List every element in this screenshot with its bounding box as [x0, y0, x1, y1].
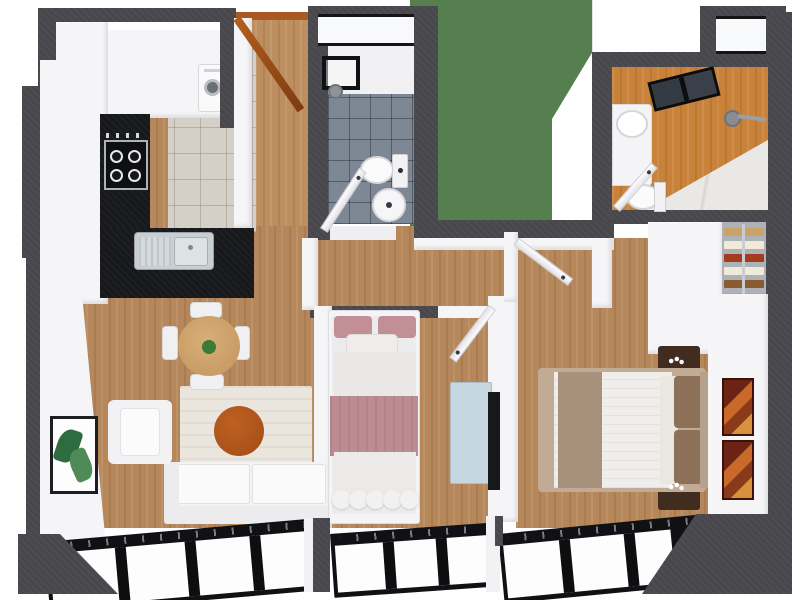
- burner-icon: [128, 150, 141, 163]
- toilet-flush-button: [398, 168, 403, 173]
- toilet-tank: [654, 182, 666, 212]
- door-handle-icon: [560, 275, 566, 281]
- wall-right-outer: [766, 12, 792, 546]
- kitchen-sink: [134, 232, 214, 270]
- blue-dresser: [450, 382, 492, 484]
- dining-chair: [162, 326, 178, 360]
- wall-bath2-left: [592, 52, 612, 222]
- burner-icon: [110, 150, 123, 163]
- door-handle-icon: [646, 169, 652, 175]
- headboard: [700, 372, 708, 488]
- wall-bath1-shaft-top: [308, 6, 438, 14]
- flower-vase-icon: [668, 482, 684, 492]
- wall-master-west: [592, 238, 612, 308]
- door-handle-icon: [455, 350, 461, 356]
- drainboard: [139, 237, 171, 266]
- wall-tv: [488, 392, 500, 490]
- burner-icon: [110, 169, 123, 182]
- wall-living-hall-stub: [302, 238, 318, 310]
- x-marked-shaft-window: [716, 16, 768, 54]
- pink-blanket: [330, 396, 418, 456]
- pedestal-sink: [372, 188, 406, 222]
- shower-head-icon: [724, 110, 741, 127]
- shower-head-icon: [328, 84, 343, 99]
- botanical-wall-art: [50, 416, 98, 494]
- bed-skirt-scallop: [400, 490, 419, 509]
- window-glass: [335, 535, 490, 592]
- sink-basin: [174, 237, 208, 266]
- wall-left-notch: [22, 86, 42, 258]
- bed-sheet: [334, 352, 416, 400]
- wall-face-entry: [234, 18, 252, 228]
- kitchen-wood-strip: [148, 116, 168, 232]
- floor-plan-canvas: [0, 0, 808, 600]
- armchair-cushion: [120, 408, 160, 456]
- abstract-wall-art: [722, 378, 754, 436]
- taupe-throw: [558, 372, 602, 488]
- faucet-icon: [188, 245, 193, 250]
- washer-panel: [204, 69, 220, 72]
- vanity-basin: [616, 110, 648, 138]
- shower-glass-panel: [322, 56, 360, 90]
- sofa-cushion: [176, 464, 250, 504]
- bathroom-main-doorway: [330, 226, 396, 240]
- flower-vase-icon: [668, 356, 684, 366]
- x-marked-shaft-window: [318, 14, 414, 46]
- stove-cooktop: [104, 140, 148, 190]
- door-handle-icon: [356, 175, 362, 181]
- washer-door-icon: [204, 79, 221, 96]
- toilet-bowl: [360, 156, 394, 184]
- brown-pillow: [674, 430, 702, 484]
- drain-icon: [386, 202, 392, 208]
- sofa-cushion: [252, 464, 326, 504]
- armchair: [108, 400, 172, 464]
- window-pillar-core: [495, 516, 503, 546]
- orange-pouf: [214, 406, 264, 456]
- wall-bath1-right: [414, 6, 438, 240]
- bedroom-small-window: [330, 523, 494, 598]
- wall-kitchen-top: [44, 8, 236, 22]
- brown-pillow: [674, 376, 702, 428]
- dining-chair: [190, 374, 224, 390]
- abstract-wall-art: [722, 440, 754, 500]
- window-pillar: [313, 518, 330, 592]
- burner-icon: [128, 169, 141, 182]
- potted-plant-icon: [202, 340, 216, 354]
- stove-knobs: [106, 133, 146, 138]
